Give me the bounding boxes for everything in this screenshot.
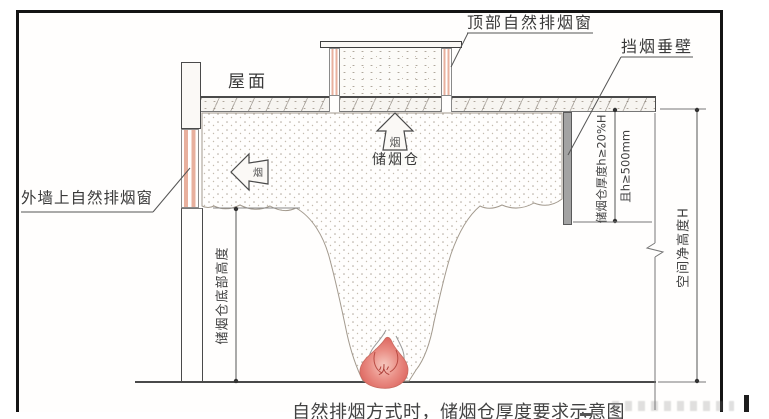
figure-caption: 自然排烟方式时，储烟仓厚度要求示意图 bbox=[292, 403, 625, 419]
dim-dot bbox=[695, 379, 699, 383]
dim-text-reservoir-thickness: 储烟仓厚度h≥20%H bbox=[596, 106, 608, 232]
smoke-reservoir-label: 储烟仓 bbox=[370, 153, 422, 168]
dim-dot bbox=[613, 108, 617, 112]
top-vent-label: 顶部自然排烟窗 bbox=[467, 14, 593, 32]
dim-dot bbox=[613, 219, 617, 223]
wall-vent-label: 外墙上自然排烟窗 bbox=[21, 190, 153, 207]
leader-top-vent bbox=[451, 33, 468, 67]
smoke-up-arrow-char: 烟 bbox=[390, 135, 401, 149]
smoke-curtain-label: 挡烟垂壁 bbox=[621, 38, 693, 56]
diagram-canvas: 烟 烟 火 屋面 顶 bbox=[0, 0, 769, 419]
leader-wall-vent bbox=[153, 168, 190, 212]
watermark-smudge bbox=[612, 401, 734, 411]
smoke-out-arrow-char: 烟 bbox=[253, 166, 263, 179]
dim-dot bbox=[695, 108, 699, 112]
roof-label: 屋面 bbox=[228, 73, 268, 92]
dim-dot bbox=[234, 379, 238, 383]
watermark-dash bbox=[580, 413, 592, 416]
diagram-linework: 烟 烟 火 bbox=[0, 0, 769, 419]
dim-text-space-clear-height: 空间净高度H bbox=[678, 201, 691, 295]
dim-dot bbox=[234, 207, 238, 211]
dim-text-reservoir-bottom-height: 储烟仓底部高度 bbox=[217, 246, 230, 346]
break-symbol bbox=[647, 243, 663, 257]
watermark-bar bbox=[744, 395, 749, 412]
fire-char: 火 bbox=[378, 363, 390, 377]
dim-text-reservoir-thickness-min: 且h≥500mm bbox=[620, 131, 632, 203]
